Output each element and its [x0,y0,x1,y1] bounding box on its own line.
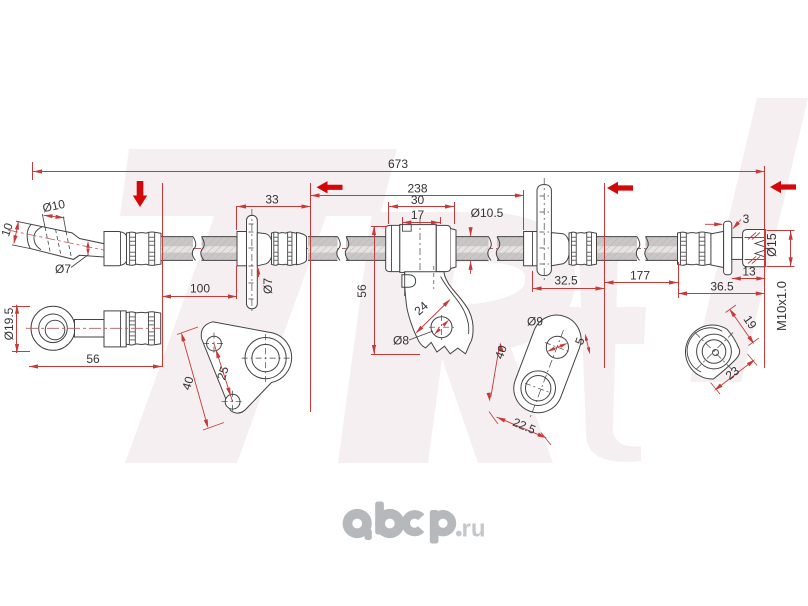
svg-text:100: 100 [190,282,210,296]
svg-text:17: 17 [411,208,425,222]
svg-text:30: 30 [411,193,425,207]
svg-text:13: 13 [742,265,756,279]
svg-text:Ø7: Ø7 [55,262,71,276]
svg-text:56: 56 [86,352,100,366]
svg-text:M10x1.0: M10x1.0 [774,281,789,331]
svg-text:36.5: 36.5 [710,280,734,294]
svg-text:Ø15: Ø15 [765,233,779,257]
svg-text:177: 177 [630,269,650,283]
svg-text:ru: ru [462,516,486,543]
svg-text:673: 673 [388,157,408,171]
svg-text:3: 3 [743,212,750,226]
svg-text:Ø19.5: Ø19.5 [2,307,16,340]
svg-text:Ø8: Ø8 [393,334,409,348]
svg-text:56: 56 [355,284,369,298]
svg-text:Ø10.5: Ø10.5 [471,206,504,220]
svg-text:Ø9: Ø9 [527,315,543,329]
svg-text:Ø7: Ø7 [261,278,275,294]
svg-text:32.5: 32.5 [554,274,578,288]
svg-text:33: 33 [265,193,279,207]
